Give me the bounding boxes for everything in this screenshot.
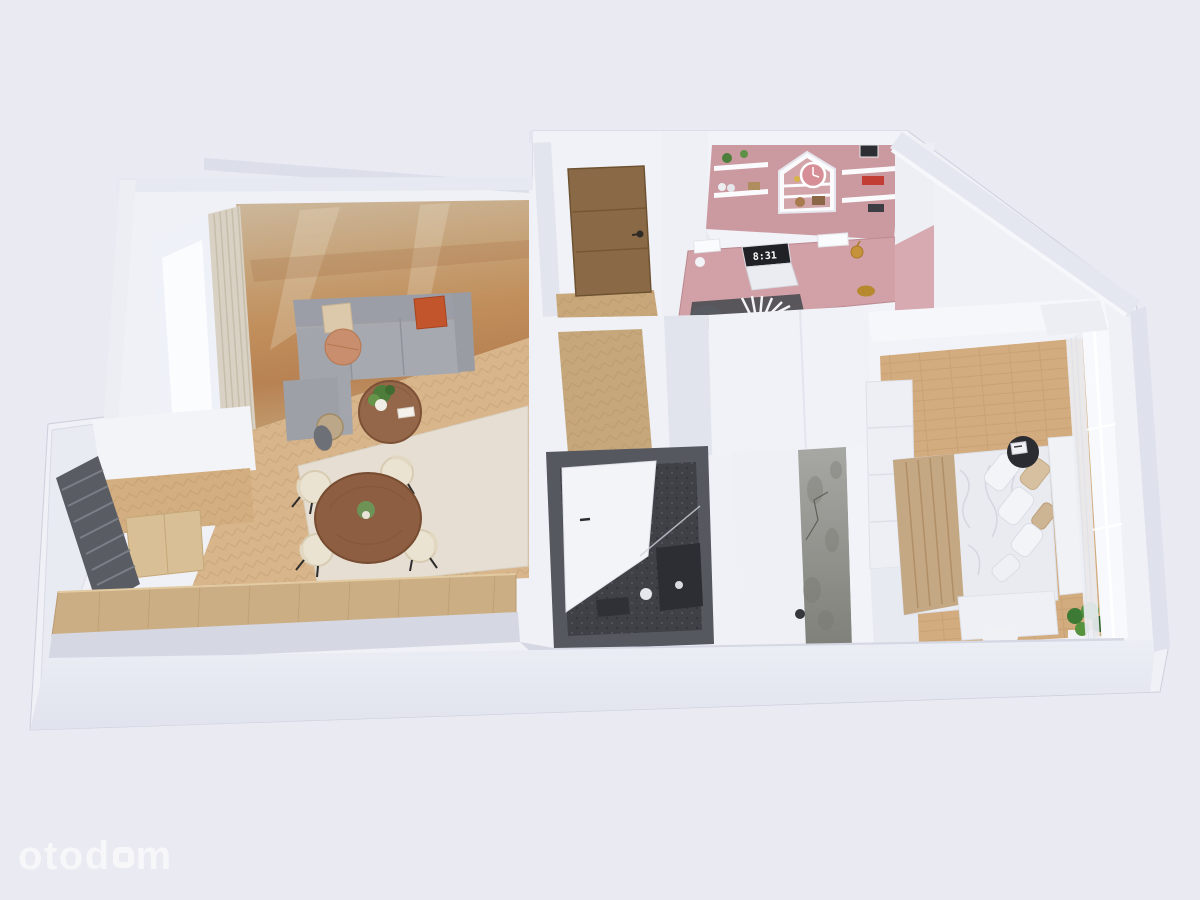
- otodom-logo-text-1: otod: [18, 834, 111, 878]
- entrance-hall: [533, 131, 662, 321]
- framed-photo: [860, 145, 878, 157]
- orange-pillow: [414, 296, 447, 329]
- wooden-box: [812, 196, 825, 205]
- bathroom: [546, 446, 714, 650]
- bedroom: [866, 298, 1128, 650]
- shelf-basket: [748, 182, 760, 190]
- kitchen-cabinet: [126, 510, 204, 578]
- floorplan-render: 8:31: [0, 0, 1200, 900]
- wall-clock: [801, 163, 825, 187]
- gold-bowl: [857, 286, 875, 297]
- coffee-table: [359, 381, 421, 443]
- books: [398, 407, 415, 418]
- floorplan-svg: 8:31: [0, 0, 1200, 900]
- laptop-clock-time: 8:31: [752, 250, 777, 263]
- otodom-logo-text-2: m: [136, 834, 173, 878]
- corridor: [533, 315, 712, 458]
- mug: [695, 257, 705, 267]
- nightstand: [1007, 436, 1039, 468]
- desk-papers: [818, 233, 849, 247]
- otodom-logo-square: [113, 847, 134, 868]
- alarm-clock: [1011, 442, 1027, 455]
- door-handle: [580, 519, 590, 520]
- bathroom-vanity: [656, 543, 703, 611]
- shelf-plant: [722, 153, 732, 163]
- wall-center: [708, 306, 868, 455]
- bath-mat: [596, 597, 630, 617]
- home-office: 8:31: [678, 131, 934, 331]
- faucet: [675, 581, 683, 589]
- north-curtain: [1040, 300, 1108, 336]
- floor-object: [795, 609, 805, 619]
- red-books: [862, 176, 884, 185]
- desk-papers: [694, 239, 721, 253]
- beige-pillow: [322, 303, 353, 333]
- wall-living-top-band: [116, 177, 533, 192]
- corridor-shade: [664, 315, 712, 456]
- teddy-bear: [795, 197, 805, 207]
- otodom-logo: otodm: [18, 836, 173, 876]
- vase: [375, 399, 387, 411]
- toilet-paper: [640, 588, 652, 600]
- bed: [893, 436, 1086, 615]
- entrance-door: [568, 166, 651, 296]
- dark-books: [868, 204, 884, 212]
- dressing-room: [732, 445, 874, 650]
- dining-table: [315, 473, 421, 563]
